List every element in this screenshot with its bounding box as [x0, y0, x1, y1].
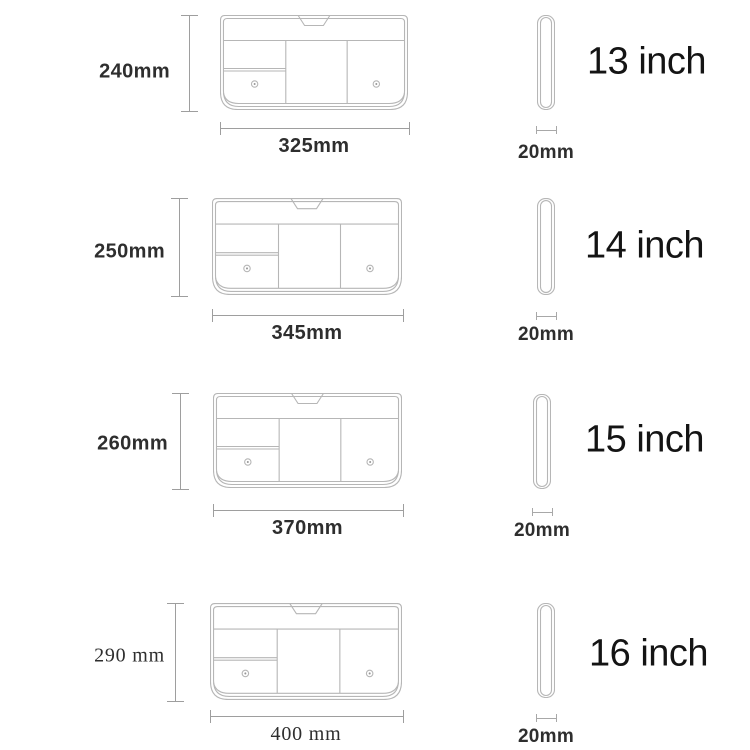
height-dimension-label: 240mm [60, 61, 170, 84]
horizontal-dimension-line [220, 122, 410, 135]
depth-dimension-label: 20mm [506, 726, 586, 748]
depth-dimension-line [536, 126, 557, 134]
depth-dimension-label: 20mm [502, 520, 582, 542]
size-inch-label: 13 inch [587, 41, 706, 84]
sleeve-side-view [533, 394, 551, 489]
height-dimension-label: 260mm [58, 433, 168, 456]
width-dimension-label: 400 mm [210, 723, 402, 746]
depth-dimension-label: 20mm [506, 324, 586, 346]
width-dimension-label: 345mm [212, 322, 402, 345]
sleeve-side-view [537, 15, 555, 110]
width-dimension-label: 370mm [213, 517, 402, 540]
sleeve-front-view [210, 603, 402, 700]
horizontal-dimension-line [212, 309, 404, 322]
vertical-dimension-line [167, 603, 184, 702]
height-dimension-label: 290 mm [55, 645, 165, 668]
sleeve-front-view [212, 198, 402, 295]
depth-dimension-label: 20mm [506, 142, 586, 164]
height-dimension-label: 250mm [55, 241, 165, 264]
size-chart: 240mm 325mm 20mm 13 inch 250mm 345mm 20m… [0, 0, 750, 750]
horizontal-dimension-line [213, 504, 404, 517]
sleeve-front-view [220, 15, 408, 110]
size-inch-label: 15 inch [585, 419, 704, 462]
vertical-dimension-line [171, 198, 188, 297]
vertical-dimension-line [172, 393, 189, 490]
width-dimension-label: 325mm [220, 135, 408, 158]
size-inch-label: 16 inch [589, 633, 708, 676]
sleeve-side-view [537, 198, 555, 295]
vertical-dimension-line [181, 15, 198, 112]
size-inch-label: 14 inch [585, 225, 704, 268]
depth-dimension-line [536, 714, 557, 722]
depth-dimension-line [532, 508, 553, 516]
depth-dimension-line [536, 312, 557, 320]
horizontal-dimension-line [210, 710, 404, 723]
sleeve-side-view [537, 603, 555, 698]
sleeve-front-view [213, 393, 402, 488]
